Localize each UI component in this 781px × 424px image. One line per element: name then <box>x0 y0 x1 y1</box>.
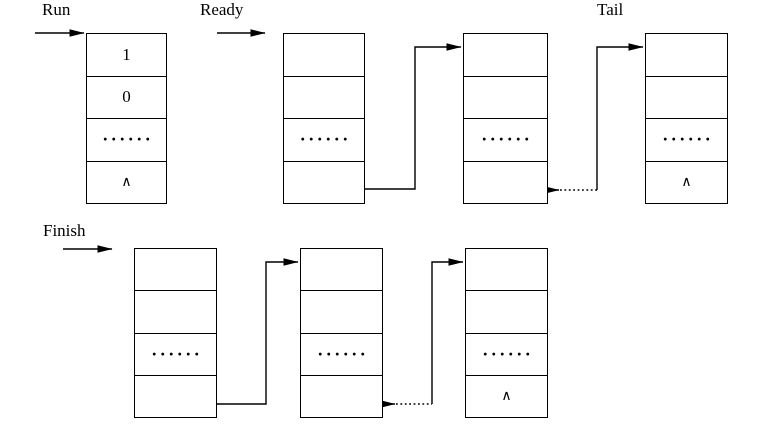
pcb-cell-null-link: ∧ <box>466 376 547 417</box>
tail-pointer-to-ready-tail <box>597 47 643 190</box>
pcb-cell-link <box>301 376 382 417</box>
pcb-cell-ellipsis: ······ <box>135 334 216 376</box>
pcb-cell-link <box>135 376 216 417</box>
pcb-cell-value <box>466 249 547 291</box>
pcb-cell-value <box>284 34 364 77</box>
pcb-cell-link <box>284 162 364 204</box>
pcb-cell-value <box>646 34 727 77</box>
pcb-cell-link <box>464 162 547 204</box>
pcb-cell-value <box>135 291 216 333</box>
pcb-cell-null-link: ∧ <box>646 162 727 204</box>
pcb-box-finish-last: ······ ∧ <box>465 248 548 418</box>
pcb-cell-value <box>301 249 382 291</box>
pcb-box-finish-1: ······ <box>134 248 217 418</box>
pcb-cell-ellipsis: ······ <box>87 119 166 162</box>
pcb-cell-value <box>466 291 547 333</box>
pcb-cell-ellipsis: ······ <box>464 119 547 162</box>
label-tail: Tail <box>597 1 623 18</box>
link-finish2-to-finish3 <box>432 262 463 404</box>
pcb-box-run: 1 0 ······ ∧ <box>86 33 167 204</box>
pcb-cell-value <box>646 77 727 120</box>
pcb-cell-value <box>464 34 547 77</box>
pcb-cell-value <box>135 249 216 291</box>
label-ready: Ready <box>200 1 243 18</box>
pcb-cell-value: 1 <box>87 34 166 77</box>
pcb-queue-diagram: Run Ready Tail Finish 1 0 ······ ∧ ·····… <box>0 0 781 424</box>
pcb-cell-value: 0 <box>87 77 166 120</box>
label-finish: Finish <box>43 222 86 239</box>
pcb-cell-value <box>464 77 547 120</box>
pcb-box-ready-1: ······ <box>283 33 365 204</box>
pcb-cell-ellipsis: ······ <box>646 119 727 162</box>
pcb-box-ready-tail: ······ ∧ <box>645 33 728 204</box>
pcb-cell-ellipsis: ······ <box>466 334 547 376</box>
pcb-cell-null-link: ∧ <box>87 162 166 204</box>
pcb-box-finish-2: ······ <box>300 248 383 418</box>
pcb-cell-value <box>301 291 382 333</box>
pcb-cell-ellipsis: ······ <box>301 334 382 376</box>
label-run: Run <box>42 1 70 18</box>
pcb-box-ready-2: ······ <box>463 33 548 204</box>
pcb-cell-value <box>284 77 364 120</box>
pcb-cell-ellipsis: ······ <box>284 119 364 162</box>
